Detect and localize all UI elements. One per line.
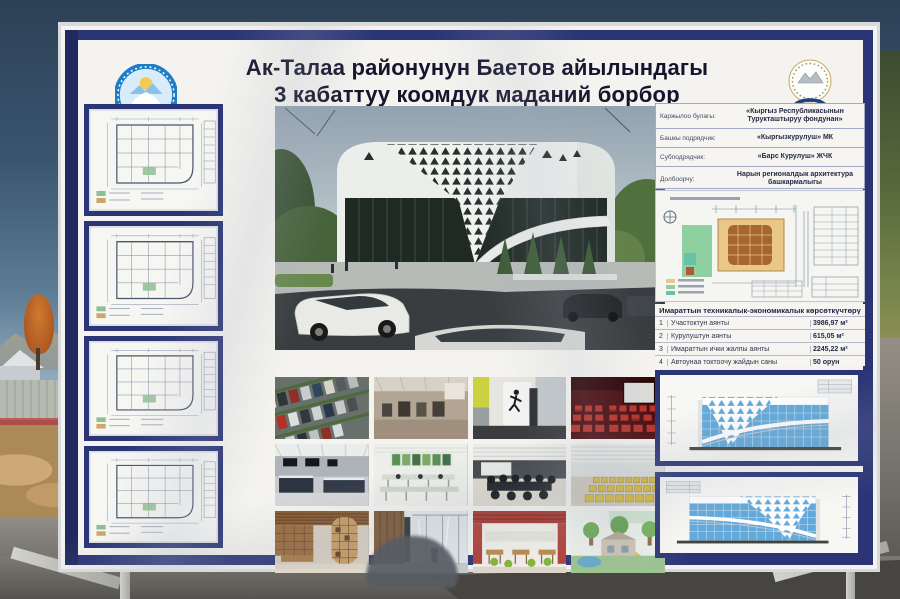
info-value: «Кыргыз Республикасынын Турукташтыруу фо… (726, 107, 864, 126)
photo-conference-room (473, 444, 567, 506)
photo-gym-corridor-runner (473, 377, 567, 439)
photo-open-office (374, 444, 468, 506)
outdoor-scene: Ак-Талаа районунун Баетов айылындагы 3 к… (0, 0, 900, 599)
photo-kids-playroom (571, 511, 665, 573)
indicator-value: 615,05 м² (810, 333, 865, 340)
photo-reception-lobby (275, 444, 369, 506)
project-info-table: Каржылоо булагы: «Кыргыз Республикасынын… (655, 103, 865, 189)
floor-plan-4 (84, 446, 223, 548)
indicators-table: Имараттын техникалык-экономикалык көрсөт… (655, 304, 865, 366)
elevation-drawing-2 (655, 472, 863, 558)
photo-cinema-hall (571, 377, 665, 439)
poster-title: Ак-Талаа районунун Баетов айылындагы 3 к… (207, 54, 747, 108)
indicator-value: 3986,97 м² (810, 320, 865, 327)
interior-photo-grid (275, 377, 665, 573)
poster-border-left (65, 30, 78, 565)
photo-gym (374, 377, 468, 439)
info-row-designer: Долбоорчу: Нарын регионалдык архитектура… (656, 167, 864, 191)
indicator-label: Автоунаа токтоочу жайдын саны (668, 359, 810, 366)
info-label: Субподрядчик: (656, 153, 726, 162)
floor-plan-1 (84, 104, 223, 216)
indicator-row-plot-area: 1 Участоктун аянты 3986,97 м² (655, 316, 865, 329)
indicator-value: 2245,22 м² (810, 346, 865, 353)
tree-trunk (36, 348, 40, 370)
info-label: Башкы подрядчик: (656, 134, 726, 143)
photo-cafeteria (473, 511, 567, 573)
elevation-drawing-1 (655, 370, 863, 466)
photo-library (275, 511, 369, 573)
photo-lecture-hall (571, 444, 665, 506)
indicator-row-internal-area: 3 Имараттын ички жалпы аянты 2245,22 м² (655, 342, 865, 355)
building-rendering (275, 106, 665, 350)
indicator-label: Имараттын ички жалпы аянты (668, 346, 810, 353)
indicator-value: 50 орун (810, 359, 865, 366)
info-value: «Кыргызкурулуш» МК (726, 133, 864, 144)
site-plan (655, 190, 865, 302)
indicator-label: Участоктун аянты (668, 320, 810, 327)
title-line-1: Ак-Талаа районунун Баетов айылындагы (207, 54, 747, 81)
indicator-row-building-area: 2 Курулуштун аянты 615,05 м² (655, 329, 865, 342)
info-value: Нарын регионалдык архитектура башкармалы… (726, 170, 864, 189)
poster-content: Ак-Талаа районунун Баетов айылындагы 3 к… (79, 40, 868, 561)
indicator-row-parking: 4 Автоунаа токтоочу жайдын саны 50 орун (655, 355, 865, 368)
indicator-label: Курулуштун аянты (668, 333, 810, 340)
info-value: «Барс Курулуш» ЖЧК (726, 152, 864, 163)
info-row-financing: Каржылоо булагы: «Кыргыз Республикасынын… (656, 104, 864, 129)
indicator-num: 1 (655, 320, 668, 327)
autumn-tree (24, 294, 54, 354)
indicator-num: 4 (655, 359, 668, 366)
indicator-num: 2 (655, 333, 668, 340)
info-row-subcontractor: Субподрядчик: «Барс Курулуш» ЖЧК (656, 148, 864, 167)
floor-plan-3 (84, 336, 223, 441)
info-row-general-contractor: Башкы подрядчик: «Кыргызкурулуш» МК (656, 129, 864, 148)
indicators-header: Имараттын техникалык-экономикалык көрсөт… (655, 304, 865, 316)
billboard-banner: Ак-Талаа районунун Баетов айылындагы 3 к… (61, 26, 877, 569)
floor-plan-2 (84, 221, 223, 331)
info-label: Каржылоо булагы: (656, 112, 726, 121)
poster-border-top (65, 30, 873, 40)
photo-parking (275, 377, 369, 439)
info-label: Долбоорчу: (656, 175, 726, 184)
indicator-num: 3 (655, 346, 668, 353)
